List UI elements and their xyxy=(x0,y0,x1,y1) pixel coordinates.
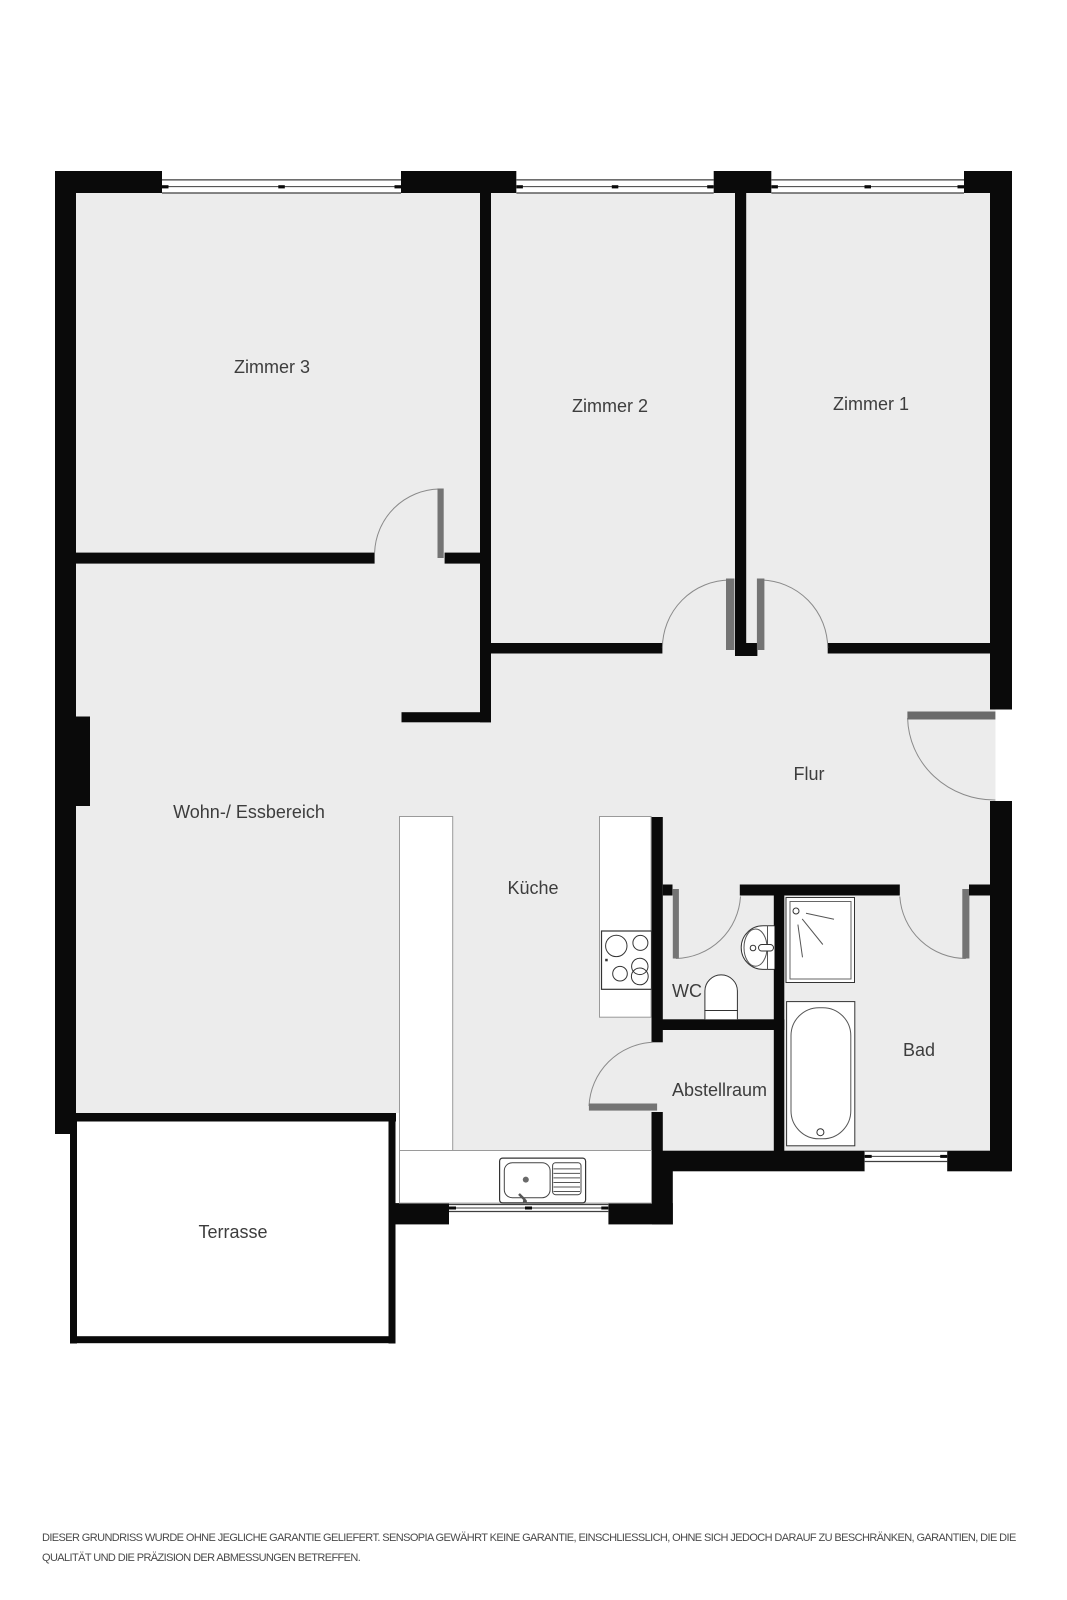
svg-text:WC: WC xyxy=(672,981,702,1001)
svg-text:Flur: Flur xyxy=(794,764,825,784)
svg-text:Küche: Küche xyxy=(507,878,558,898)
svg-text:DIESER GRUNDRISS WURDE OHNE JE: DIESER GRUNDRISS WURDE OHNE JEGLICHE GAR… xyxy=(42,1532,1016,1544)
svg-text:Wohn-/ Essbereich: Wohn-/ Essbereich xyxy=(173,802,325,822)
svg-text:Abstellraum: Abstellraum xyxy=(672,1080,767,1100)
svg-text:Zimmer 3: Zimmer 3 xyxy=(234,357,310,377)
svg-text:Terrasse: Terrasse xyxy=(198,1222,267,1242)
svg-text:Bad: Bad xyxy=(903,1040,935,1060)
svg-text:Zimmer 1: Zimmer 1 xyxy=(833,394,909,414)
svg-text:Zimmer 2: Zimmer 2 xyxy=(572,396,648,416)
svg-text:QUALITÄT UND DIE PRÄZISION DER: QUALITÄT UND DIE PRÄZISION DER ABMESSUNG… xyxy=(42,1552,361,1564)
